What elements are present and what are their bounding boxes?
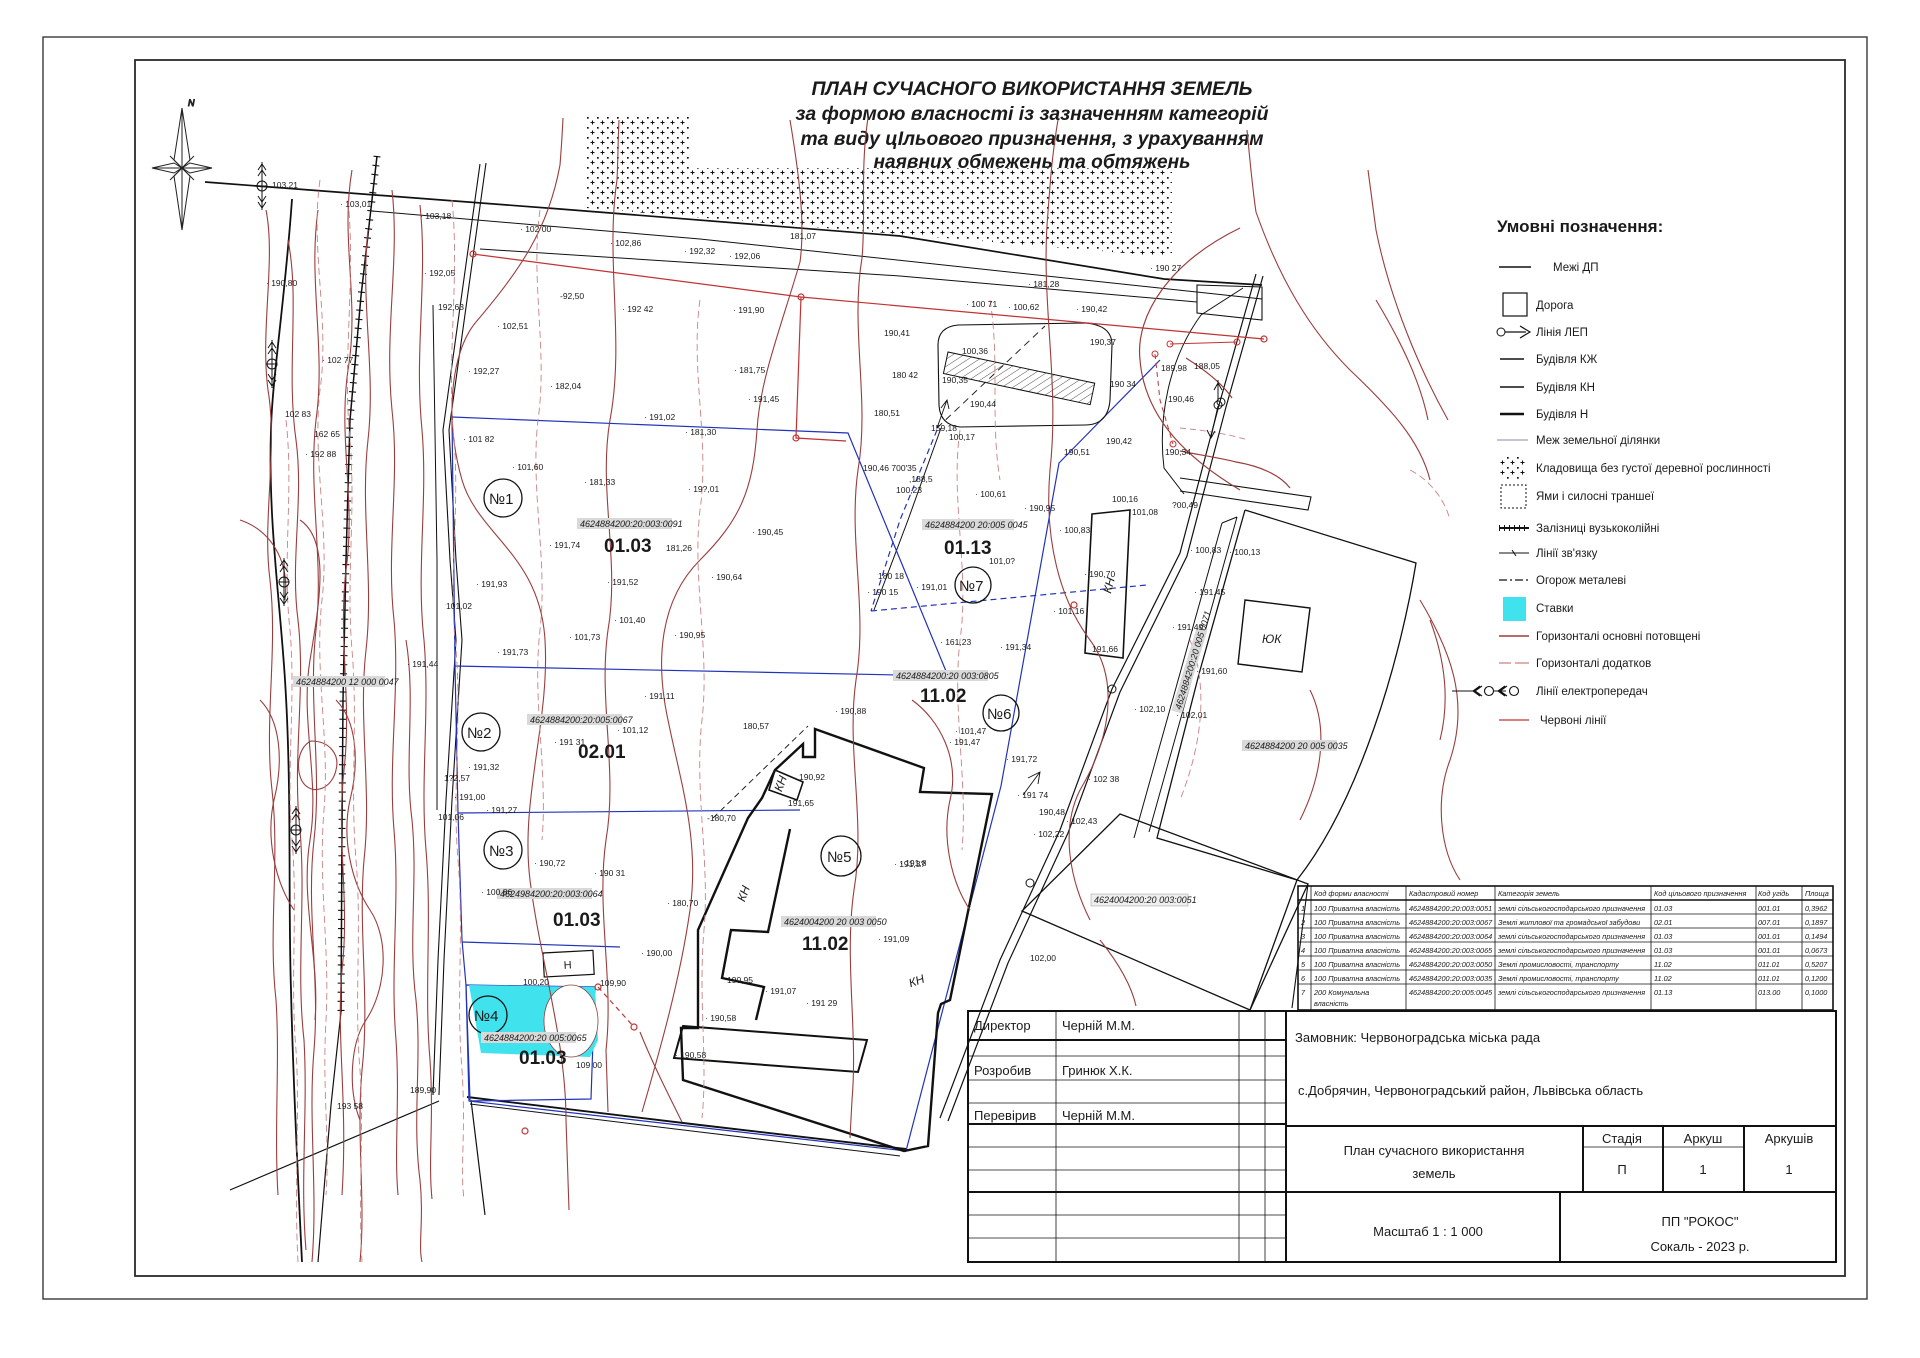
svg-text:ЮК: ЮК: [1262, 632, 1282, 646]
svg-text:11.02: 11.02: [1654, 974, 1672, 983]
svg-text:ПП "РОКОС": ПП "РОКОС": [1662, 1214, 1739, 1229]
svg-text:188,05: 188,05: [1194, 361, 1220, 371]
svg-text:101,02: 101,02: [446, 601, 472, 611]
svg-text:Код форми власності: Код форми власності: [1314, 889, 1389, 898]
svg-text:· 191,32: · 191,32: [468, 762, 499, 772]
svg-text:Черній М.М.: Черній М.М.: [1062, 1018, 1135, 1033]
svg-text:11.02: 11.02: [1654, 960, 1672, 969]
svg-text:0,1494: 0,1494: [1805, 932, 1827, 941]
svg-text:011.01: 011.01: [1758, 974, 1780, 983]
svg-text:Землі житлової та громадської: Землі житлової та громадської забудови: [1498, 918, 1640, 927]
svg-text:0,1200: 0,1200: [1805, 974, 1827, 983]
svg-text:100 Приватна власність: 100 Приватна власність: [1314, 946, 1400, 955]
svg-text:100 Приватна власність: 100 Приватна власність: [1314, 918, 1400, 927]
svg-text:· 190,58: · 190,58: [675, 1050, 706, 1060]
svg-text:190 34: 190 34: [1110, 379, 1136, 389]
svg-text:109,90: 109,90: [600, 978, 626, 988]
svg-text:011.01: 011.01: [1758, 960, 1780, 969]
svg-text:П: П: [1617, 1162, 1626, 1177]
svg-text:· 190,95: · 190,95: [1024, 503, 1055, 513]
svg-text:Ставки: Ставки: [1536, 603, 1573, 615]
svg-text:та виду цІльового призначення,: та виду цІльового призначення, з урахува…: [801, 128, 1265, 150]
svg-text:· 101,47: · 101,47: [955, 726, 986, 736]
svg-text:4624884200:20:003:0067: 4624884200:20:003:0067: [1409, 918, 1493, 927]
svg-text:власність: власність: [1314, 999, 1349, 1008]
svg-text:· 192,27: · 192,27: [468, 366, 499, 376]
svg-text:013.00: 013.00: [1758, 988, 1780, 997]
svg-text:162 65: 162 65: [314, 429, 340, 439]
svg-text:· 181,75: · 181,75: [734, 365, 765, 375]
svg-text:· 191,00: · 191,00: [454, 792, 485, 802]
svg-text:001.01: 001.01: [1758, 932, 1780, 941]
svg-text:100 Приватна власність: 100 Приватна власність: [1314, 904, 1400, 913]
svg-text:4624884200 20:005 0045: 4624884200 20:005 0045: [925, 520, 1029, 530]
svg-text:за формою власності із зазначе: за формою власності із зазначенням катег…: [796, 103, 1269, 125]
svg-text:1: 1: [1785, 1162, 1792, 1177]
svg-text:· 181,28: · 181,28: [1028, 279, 1059, 289]
svg-text:4: 4: [1301, 946, 1305, 955]
svg-text:11.02: 11.02: [802, 934, 849, 955]
svg-text:Землі промисловості, транспорт: Землі промисловості, транспорту: [1498, 974, 1620, 983]
svg-text:001.01: 001.01: [1758, 904, 1780, 913]
svg-text:· 190,42: · 190,42: [1076, 304, 1107, 314]
svg-text:· 101,16: · 101,16: [1053, 606, 1084, 616]
svg-text:земель: земель: [1412, 1166, 1455, 1181]
svg-text:01.03: 01.03: [1654, 932, 1672, 941]
svg-text:· 191,72: · 191,72: [1006, 754, 1037, 764]
svg-text:№3: №3: [489, 843, 513, 860]
svg-text:· 191 29: · 191 29: [806, 998, 837, 1008]
svg-text:001.01: 001.01: [1758, 946, 1780, 955]
svg-text:· 191 74: · 191 74: [1017, 790, 1048, 800]
svg-text:ПЛАН СУЧАСНОГО ВИКОРИСТАННЯ ЗЕ: ПЛАН СУЧАСНОГО ВИКОРИСТАННЯ ЗЕМЕЛЬ: [812, 78, 1253, 100]
svg-text:0,3962: 0,3962: [1805, 904, 1827, 913]
svg-text:180,51: 180,51: [874, 408, 900, 418]
svg-text:· 161,23: · 161,23: [940, 637, 971, 647]
svg-text:с.Добрячин, Червоноградський р: с.Добрячин, Червоноградський район, Льві…: [1298, 1083, 1643, 1098]
svg-text:190,48: 190,48: [1039, 807, 1065, 817]
svg-text:Розробив: Розробив: [974, 1063, 1031, 1078]
svg-text:11.02: 11.02: [920, 686, 967, 707]
svg-text:190,44: 190,44: [970, 399, 996, 409]
svg-text:4624884200:20 003:0805: 4624884200:20 003:0805: [896, 671, 1000, 681]
svg-text:Лінії зв'язку: Лінії зв'язку: [1536, 548, 1598, 560]
svg-text:· 191,90: · 191,90: [733, 305, 764, 315]
svg-text:· 181,33: · 181,33: [584, 477, 615, 487]
svg-text:Черній М.М.: Черній М.М.: [1062, 1108, 1135, 1123]
svg-text:181,07: 181,07: [790, 231, 816, 241]
svg-text:4624884200:20:003:0035: 4624884200:20:003:0035: [1409, 974, 1493, 983]
svg-text:· 191,27: · 191,27: [486, 805, 517, 815]
svg-text:4624884200 12 000 0047: 4624884200 12 000 0047: [296, 677, 400, 687]
svg-text:· 180,70: · 180,70: [667, 898, 698, 908]
svg-text:· 190,00: · 190,00: [641, 948, 672, 958]
svg-text:100 Приватна власність: 100 Приватна власність: [1314, 960, 1400, 969]
svg-text:· 191,52: · 191,52: [607, 577, 638, 587]
svg-text:· 191,44: · 191,44: [407, 659, 438, 669]
svg-text:180 42: 180 42: [892, 370, 918, 380]
svg-text:· 100,62: · 100,62: [1008, 302, 1039, 312]
svg-text:4624884200:20:003:0051: 4624884200:20:003:0051: [1409, 904, 1492, 913]
svg-text:· 102,22: · 102,22: [1033, 829, 1064, 839]
svg-text:· 102 00: · 102 00: [520, 224, 551, 234]
svg-text:землі сільськогосподарського п: землі сільськогосподарського призначення: [1497, 904, 1645, 913]
svg-text:· 192 88: · 192 88: [305, 449, 336, 459]
svg-text:Аркушів: Аркушів: [1765, 1131, 1814, 1146]
svg-text:· 190,72: · 190,72: [534, 858, 565, 868]
svg-text:01.13: 01.13: [944, 538, 992, 559]
svg-text:Лінія ЛЕП: Лінія ЛЕП: [1536, 327, 1588, 339]
svg-text:4624004200 20 003 0050: 4624004200 20 003 0050: [784, 917, 887, 927]
svg-text:· 100 86: · 100 86: [481, 887, 512, 897]
svg-text:· 191,09: · 191,09: [878, 934, 909, 944]
svg-text:землі сільськогосподарського п: землі сільськогосподарського призначення: [1497, 988, 1645, 997]
svg-text:· 191,73: · 191,73: [497, 647, 528, 657]
svg-text:· 192 42: · 192 42: [622, 304, 653, 314]
svg-text:109 00: 109 00: [576, 1060, 602, 1070]
svg-text:землі сільськогосподарського п: землі сільськогосподарського призначення: [1497, 932, 1645, 941]
svg-text:4624884200:20:003:0091: 4624884200:20:003:0091: [580, 519, 683, 529]
svg-text:· 100,61: · 100,61: [975, 489, 1006, 499]
svg-text:Будівля Н: Будівля Н: [1536, 409, 1588, 421]
svg-text:0,0673: 0,0673: [1805, 946, 1827, 955]
svg-text:190,51: 190,51: [1064, 447, 1090, 457]
svg-text:100,23: 100,23: [896, 485, 922, 495]
svg-text:№2: №2: [467, 725, 491, 742]
svg-text:· 190 27: · 190 27: [1150, 263, 1181, 273]
svg-text:· 102,51: · 102,51: [497, 321, 528, 331]
svg-text:100 Приватна власність: 100 Приватна власність: [1314, 974, 1400, 983]
svg-text:190,46: 190,46: [1168, 394, 1194, 404]
svg-text:· 191,3?: · 191,3?: [894, 859, 925, 869]
svg-text:· 191,11: · 191,11: [644, 691, 675, 701]
svg-text:· 102 38: · 102 38: [1088, 774, 1119, 784]
svg-text:Кладовища без густої деревної: Кладовища без густої деревної рослинност…: [1536, 463, 1771, 475]
svg-text:Дорога: Дорога: [1536, 300, 1574, 312]
svg-text:· 101 82: · 101 82: [463, 434, 494, 444]
svg-text:192,63: 192,63: [438, 302, 464, 312]
svg-text:01.03: 01.03: [604, 536, 652, 557]
svg-text:· 191 31: · 191 31: [554, 737, 585, 747]
svg-text:4624884200:20 005:0065: 4624884200:20 005:0065: [484, 1033, 588, 1043]
svg-text:100 Приватна власність: 100 Приватна власність: [1314, 932, 1400, 941]
svg-text:· 191,93: · 191,93: [476, 579, 507, 589]
svg-text:4624004200:20 003:0051: 4624004200:20 003:0051: [1094, 895, 1197, 905]
svg-text:4624884200:20:003:0064: 4624884200:20:003:0064: [1409, 932, 1492, 941]
svg-text:Огорож металеві: Огорож металеві: [1536, 575, 1626, 587]
svg-text:· 100,13: · 100,13: [1229, 547, 1260, 557]
svg-text:· 101,12: · 101,12: [617, 725, 648, 735]
svg-text:· 102 77: · 102 77: [322, 355, 353, 365]
svg-text:· 103,18: · 103,18: [420, 211, 451, 221]
svg-text:Аркуш: Аркуш: [1684, 1131, 1723, 1146]
svg-text:· 191,07: · 191,07: [765, 986, 796, 996]
svg-text:190,37: 190,37: [1090, 337, 1116, 347]
svg-text:191,65: 191,65: [788, 798, 814, 808]
svg-text:4624884200:20:005:0045: 4624884200:20:005:0045: [1409, 988, 1493, 997]
svg-text:189,90: 189,90: [410, 1085, 436, 1095]
svg-text:103,21: 103,21: [272, 180, 298, 190]
svg-text:· 191,45: · 191,45: [748, 394, 779, 404]
svg-text:Перевірив: Перевірив: [974, 1108, 1036, 1123]
svg-text:№6: №6: [987, 706, 1011, 723]
svg-text:· 19?,01: · 19?,01: [688, 484, 719, 494]
svg-text:· 190,45: · 190,45: [752, 527, 783, 537]
svg-text:Залізниці вузькоколійні: Залізниці вузькоколійні: [1536, 523, 1659, 535]
svg-text:Замовник: Червоноградська місь: Замовник: Червоноградська міська рада: [1295, 1030, 1541, 1045]
svg-text:101,06: 101,06: [438, 812, 464, 822]
svg-text:Кадастровий номер: Кадастровий номер: [1409, 889, 1478, 898]
svg-text:№1: №1: [489, 491, 513, 508]
svg-text:Гринюк Х.К.: Гринюк Х.К.: [1062, 1063, 1133, 1078]
svg-text:Сокаль - 2023 р.: Сокаль - 2023 р.: [1650, 1239, 1749, 1254]
svg-text:007.01: 007.01: [1758, 918, 1780, 927]
svg-text:4624884200:20:003:0065: 4624884200:20:003:0065: [1409, 946, 1493, 955]
svg-text:землі сільськогосподарського п: землі сільськогосподарського призначення: [1497, 946, 1645, 955]
svg-text:,188,5: ,188,5: [909, 474, 933, 484]
svg-text:· 190,80: · 190,80: [266, 278, 297, 288]
svg-text:· 190,95: · 190,95: [674, 630, 705, 640]
svg-text:Умовні позначення:: Умовні позначення:: [1497, 217, 1663, 236]
svg-text:Стадія: Стадія: [1602, 1131, 1642, 1146]
svg-text:2: 2: [1300, 918, 1305, 927]
svg-text:· 190,64: · 190,64: [711, 572, 742, 582]
svg-text:Горизонталі основні потовщені: Горизонталі основні потовщені: [1536, 631, 1700, 643]
svg-text:· 102,86: · 102,86: [610, 238, 641, 248]
svg-text:190,34: 190,34: [1165, 447, 1191, 457]
svg-text:1?2,57: 1?2,57: [444, 773, 470, 783]
svg-text:№7: №7: [959, 578, 983, 595]
svg-text:180 18: 180 18: [878, 571, 904, 581]
svg-text:· 191,02: · 191,02: [644, 412, 675, 422]
svg-text:200 Комунальна: 200 Комунальна: [1313, 988, 1369, 997]
svg-text:· 191,47: · 191,47: [949, 737, 980, 747]
svg-text:№5: №5: [827, 849, 851, 866]
svg-text:· 100,83: · 100,83: [1190, 545, 1221, 555]
svg-text:· 101,40: · 101,40: [614, 615, 645, 625]
svg-text:Лінії електропередач: Лінії електропередач: [1536, 686, 1648, 698]
svg-text:Площа: Площа: [1805, 889, 1829, 898]
svg-text:· 181,30: · 181,30: [685, 427, 716, 437]
svg-text:· 103,01: · 103,01: [340, 199, 371, 209]
svg-text:Масштаб 1 : 1 000: Масштаб 1 : 1 000: [1373, 1224, 1483, 1239]
svg-text:3: 3: [1301, 932, 1305, 941]
svg-text:181,26: 181,26: [666, 543, 692, 553]
svg-text:· 102,01: · 102,01: [1176, 710, 1207, 720]
svg-text:· 191,74: · 191,74: [549, 540, 580, 550]
svg-text:· 190,58: · 190,58: [705, 1013, 736, 1023]
svg-text:· 192,06: · 192,06: [729, 251, 760, 261]
svg-text:N: N: [188, 98, 195, 108]
svg-text:01.03: 01.03: [519, 1048, 567, 1069]
svg-text:180,57: 180,57: [743, 721, 769, 731]
svg-text:-180,70: -180,70: [707, 813, 736, 823]
svg-text:190,42: 190,42: [1106, 436, 1132, 446]
svg-text:· 100 71: · 100 71: [966, 299, 997, 309]
svg-text:· 101,73: · 101,73: [569, 632, 600, 642]
svg-text:Горизонталі додатков: Горизонталі додатков: [1536, 658, 1651, 670]
svg-text:· 191,49: · 191,49: [1172, 622, 1203, 632]
svg-text:Меж земельної ділянки: Меж земельної ділянки: [1536, 435, 1660, 447]
svg-text:190,95: 190,95: [727, 975, 753, 985]
svg-text:Категорія земель: Категорія земель: [1498, 889, 1560, 898]
svg-text:Будівля КН: Будівля КН: [1536, 382, 1595, 394]
svg-text:· 190 15: · 190 15: [867, 587, 898, 597]
svg-text:1: 1: [1301, 904, 1305, 913]
svg-text:· 191,34: · 191,34: [1000, 642, 1031, 652]
svg-text:4624884200:20:003:0050: 4624884200:20:003:0050: [1409, 960, 1492, 969]
svg-text:191,66: 191,66: [1092, 644, 1118, 654]
svg-text:· 192,32: · 192,32: [684, 246, 715, 256]
svg-text:101,0?: 101,0?: [989, 556, 1015, 566]
svg-text:Н: Н: [563, 960, 572, 972]
svg-text:Код цільового призначення: Код цільового призначення: [1654, 889, 1747, 898]
svg-text:100,36: 100,36: [962, 346, 988, 356]
svg-text:01.03: 01.03: [1654, 946, 1672, 955]
svg-text:02.01: 02.01: [1654, 918, 1672, 927]
svg-text:· 101,60: · 101,60: [512, 462, 543, 472]
svg-text:· 190 31: · 190 31: [594, 868, 625, 878]
svg-text:· 191,01: · 191,01: [916, 582, 947, 592]
svg-text:№4: №4: [474, 1008, 498, 1025]
svg-text:· 192,05: · 192,05: [424, 268, 455, 278]
svg-text:· 191,45: · 191,45: [1194, 587, 1225, 597]
svg-text:?00,49: ?00,49: [1172, 500, 1198, 510]
svg-text:0,5207: 0,5207: [1805, 960, 1828, 969]
svg-text:Директор: Директор: [974, 1018, 1031, 1033]
svg-text:Будівля КЖ: Будівля КЖ: [1536, 354, 1598, 366]
svg-text:· 100,83: · 100,83: [1059, 525, 1090, 535]
svg-text:План сучасного використання: План сучасного використання: [1344, 1143, 1525, 1158]
svg-text:102,00: 102,00: [1030, 953, 1056, 963]
svg-text:· 102,43: · 102,43: [1066, 816, 1097, 826]
svg-text:-92,50: -92,50: [560, 291, 584, 301]
svg-text:Межі ДП: Межі ДП: [1553, 262, 1598, 274]
svg-text:1: 1: [1699, 1162, 1706, 1177]
svg-text:190,35: 190,35: [942, 375, 968, 385]
svg-text:01.13: 01.13: [1654, 988, 1672, 997]
svg-text:100,16: 100,16: [1112, 494, 1138, 504]
svg-text:· 190,88: · 190,88: [835, 706, 866, 716]
svg-text:100,17: 100,17: [949, 432, 975, 442]
svg-text:Ями і силосні траншеї: Ями і силосні траншеї: [1536, 491, 1655, 503]
svg-text:· 190,70: · 190,70: [1084, 569, 1115, 579]
svg-text:101,08: 101,08: [1132, 507, 1158, 517]
svg-text:4624884200:20:005:0067: 4624884200:20:005:0067: [530, 715, 634, 725]
svg-text:· 102,10: · 102,10: [1134, 704, 1165, 714]
svg-text:Код угідь: Код угідь: [1758, 889, 1789, 898]
svg-text:01.03: 01.03: [1654, 904, 1672, 913]
svg-text:0,1000: 0,1000: [1805, 988, 1827, 997]
svg-text:· 191,60: · 191,60: [1196, 666, 1227, 676]
svg-text:4624984200:20:003:0064: 4624984200:20:003:0064: [500, 889, 603, 899]
svg-text:190,46 700'35: 190,46 700'35: [863, 463, 917, 473]
svg-text:4624884200 20 005 0035: 4624884200 20 005 0035: [1245, 741, 1349, 751]
svg-text:102 83: 102 83: [285, 409, 311, 419]
svg-text:0,1897: 0,1897: [1805, 918, 1828, 927]
svg-text:100,20: 100,20: [523, 977, 549, 987]
svg-text:Червоні лінії: Червоні лінії: [1540, 715, 1607, 727]
svg-text:Землі промисловості, транспорт: Землі промисловості, транспорту: [1498, 960, 1620, 969]
svg-text:· 182,04: · 182,04: [550, 381, 581, 391]
svg-text:01.03: 01.03: [553, 910, 601, 931]
svg-text:190,92: 190,92: [799, 772, 825, 782]
svg-text:190,41: 190,41: [884, 328, 910, 338]
svg-text:189,98: 189,98: [1161, 363, 1187, 373]
svg-text:193 58: 193 58: [337, 1101, 363, 1111]
